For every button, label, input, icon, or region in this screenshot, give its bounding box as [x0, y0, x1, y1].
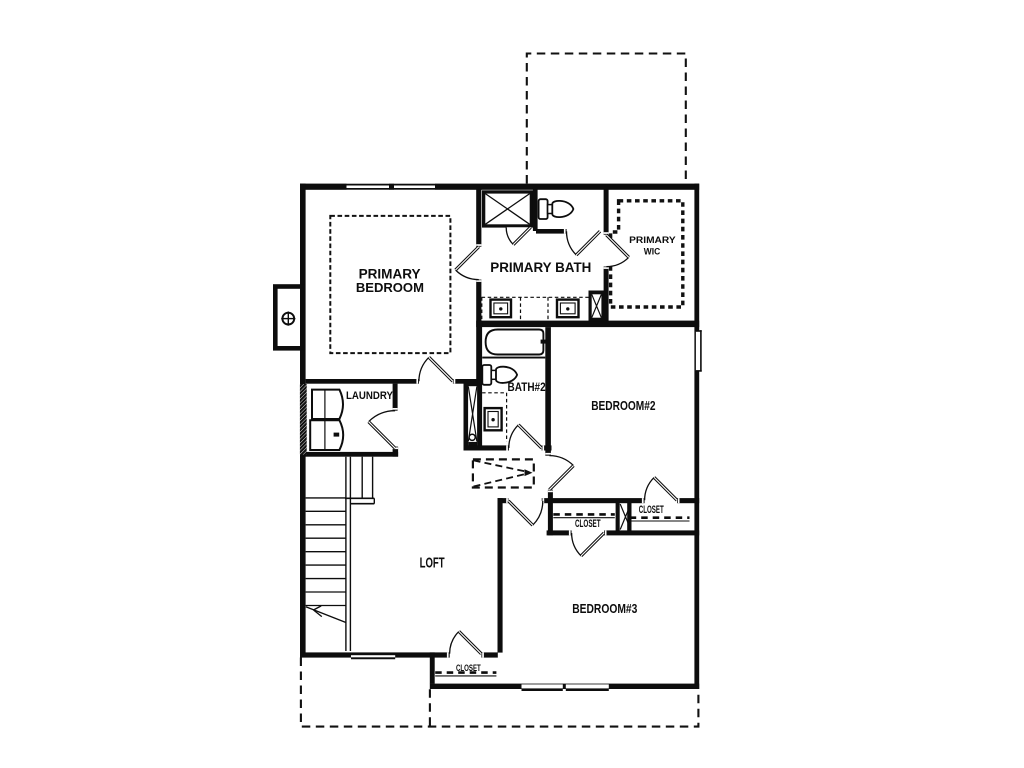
svg-text:PRIMARY BATH: PRIMARY BATH [490, 260, 591, 276]
svg-text:LAUNDRY: LAUNDRY [346, 390, 393, 402]
svg-text:BATH#2: BATH#2 [508, 380, 546, 394]
svg-text:BEDROOM: BEDROOM [356, 280, 424, 295]
svg-text:LOFT: LOFT [420, 556, 445, 572]
svg-text:CLOSET: CLOSET [456, 662, 481, 673]
svg-text:WIC: WIC [644, 247, 661, 258]
svg-text:CLOSET: CLOSET [639, 504, 664, 516]
svg-text:BEDROOM#2: BEDROOM#2 [591, 399, 655, 413]
svg-text:CLOSET: CLOSET [575, 518, 601, 530]
svg-text:PRIMARY: PRIMARY [629, 235, 676, 246]
svg-text:BEDROOM#3: BEDROOM#3 [572, 602, 637, 616]
